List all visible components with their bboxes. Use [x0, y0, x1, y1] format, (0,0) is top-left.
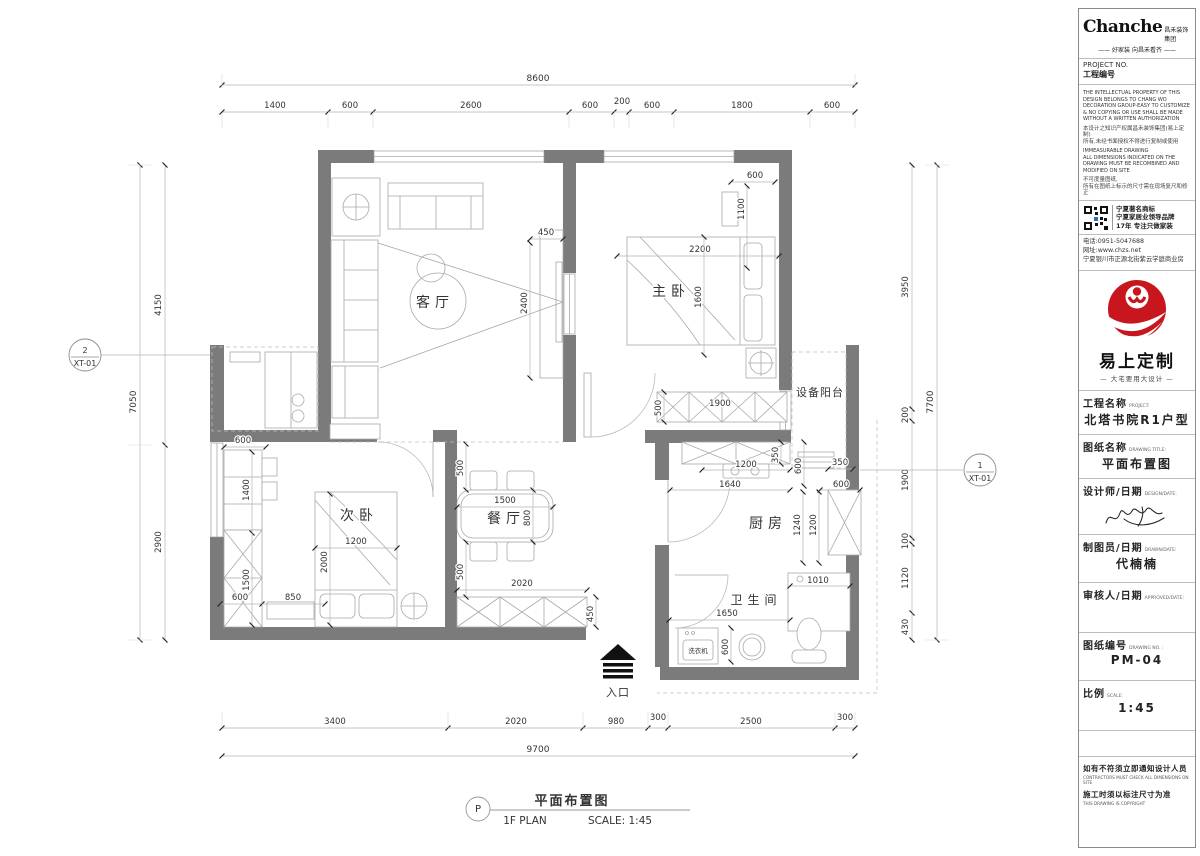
master-bedroom-furniture: [627, 192, 787, 422]
company-logo: Chanche: [1083, 17, 1162, 37]
qr-caption-line: 17年 专注只做家装: [1116, 222, 1175, 231]
dim-label: 2020: [511, 579, 533, 589]
dim-label: 2500: [740, 717, 762, 727]
qr-section: 宁夏著名商标 宁夏家居业领导品牌 17年 专注只做家装: [1079, 201, 1195, 235]
brand-mark-section: 易上定制 — 大宅要用大设计 —: [1079, 271, 1195, 391]
field-label-cn: 制图员/日期: [1083, 539, 1143, 554]
dining-room-furniture: [457, 471, 587, 627]
marker-code: XT-01: [969, 474, 992, 483]
field-label-cn: 工程名称: [1083, 395, 1127, 410]
dim-label: 1400: [264, 101, 286, 111]
project-no-section: PROJECT NO. 工程编号: [1079, 59, 1195, 85]
section-marker-left: 2 XT-01: [69, 339, 210, 371]
plan-caption: P 平面布置图 1F PLAN SCALE: 1:45: [466, 793, 690, 827]
dim-label: 1900: [709, 399, 731, 409]
marker-number: 1: [977, 461, 982, 470]
field-label-cn: 设计师/日期: [1083, 483, 1143, 498]
brand-logo-icon: [1105, 277, 1169, 341]
legal-notice: THE INTELLECTUAL PROPERTY OF THIS DESIGN…: [1079, 85, 1195, 201]
website: 网址:www.chzs.net: [1083, 246, 1191, 255]
field-label-en: DRAWING TITLE:: [1129, 448, 1166, 453]
dim-label: 1650: [716, 609, 738, 619]
project-name-value: 北塔书院R1户型: [1083, 411, 1191, 428]
project-no-label-en: PROJECT NO.: [1083, 61, 1191, 69]
dim-label: 7050: [129, 390, 139, 413]
field-designer: 设计师/日期 DESIGN/DATE:: [1079, 479, 1195, 535]
dim-label: 600: [833, 480, 849, 490]
note-cn: 如有不符须立即通知设计人员: [1083, 763, 1191, 774]
dim-label: 2200: [689, 245, 711, 255]
field-label-en: SCALE:: [1107, 694, 1123, 699]
drawing-title-value: 平面布置图: [1083, 455, 1191, 472]
drafter-value: 代楠楠: [1083, 555, 1191, 572]
dim-label: 600: [342, 101, 358, 111]
dim-label: 1500: [242, 569, 252, 591]
field-label-cn: 图纸编号: [1083, 637, 1127, 652]
dim-label: 1120: [901, 567, 911, 589]
field-label-en: DESIGN/DATE:: [1145, 492, 1177, 497]
marker-number: 2: [82, 346, 87, 355]
dim-label: 7700: [926, 390, 936, 413]
dim-chain-right: 3950 200 1900 100 1120 430 7700: [901, 165, 949, 640]
field-approver: 审核人/日期 APPROVED/DATE:: [1079, 583, 1195, 633]
dim-label: 600: [794, 458, 804, 474]
dim-label: 3950: [901, 276, 911, 298]
dim-label: 1800: [731, 101, 753, 111]
dim-label: 1200: [809, 514, 819, 536]
field-label-cn: 比例: [1083, 685, 1105, 700]
field-label-en: DRAWING NO. :: [1129, 646, 1163, 651]
field-label-cn: 审核人/日期: [1083, 587, 1143, 602]
brand-logo-tagline: — 大宅要用大设计 —: [1083, 373, 1191, 383]
dim-label: 200: [901, 407, 911, 423]
designer-signature: [1098, 499, 1176, 531]
company-name-cn: 昌禾装饰集团: [1164, 25, 1191, 43]
dim-label: 450: [586, 606, 596, 622]
dim-label: 600: [747, 171, 763, 181]
note-en: CONTRACTORS MUST CHECK ALL DIMENSIONS ON…: [1083, 775, 1191, 785]
brand-logo-name: 易上定制: [1083, 347, 1191, 372]
caption-bubble: P: [475, 804, 481, 815]
dim-chain-left: 4150 2900 7050: [128, 165, 165, 640]
spacer-cell: [1079, 731, 1195, 757]
qr-caption-line: 宁夏家居业领导品牌: [1116, 213, 1175, 222]
dim-label: 600: [824, 101, 840, 111]
dim-label: 850: [285, 593, 301, 603]
dim-label: 2000: [320, 551, 330, 573]
legal-text-en: IMMEASURABLE DRAWING ALL DIMENSIONS INDI…: [1083, 148, 1191, 174]
drawing-no-value: PM-04: [1083, 653, 1191, 667]
dim-label: 1900: [901, 469, 911, 491]
scale-value: 1:45: [1083, 701, 1191, 715]
dim-label: 600: [582, 101, 598, 111]
qr-code: [1083, 205, 1109, 231]
dim-label: 500: [654, 400, 664, 416]
dim-label: 8600: [527, 74, 550, 84]
field-label-en: PROJECT:: [1129, 404, 1149, 409]
dim-label: 3400: [324, 717, 346, 727]
dim-chain-bottom: 3400 2020 980 300 2500 300 9700: [222, 712, 855, 756]
field-drafter: 制图员/日期 DRAWN/DATE: 代楠楠: [1079, 535, 1195, 583]
field-scale: 比例 SCALE: 1:45: [1079, 681, 1195, 731]
dim-label: 600: [232, 593, 248, 603]
dim-label: 1600: [694, 286, 704, 308]
legal-text-cn: 不可度量图纸, 所有在图纸上标示的尺寸需在现场复尺和修正: [1083, 177, 1191, 197]
dim-label: 200: [614, 97, 630, 107]
dim-label: 1500: [494, 496, 516, 506]
dim-label: 9700: [527, 745, 550, 755]
dim-label: 500: [456, 564, 466, 580]
dim-label: 600: [644, 101, 660, 111]
room-label-master: 主卧: [652, 284, 690, 300]
section-marker-right: 1 XT-01: [860, 454, 996, 486]
field-label-cn: 图纸名称: [1083, 439, 1127, 454]
project-no-label-cn: 工程编号: [1083, 69, 1191, 80]
dim-label: 1100: [737, 198, 747, 220]
note-cn: 施工时须以标注尺寸为准: [1083, 789, 1191, 800]
phone-number: 电话:0951-5047688: [1083, 237, 1191, 246]
entrance-label: 入口: [606, 686, 630, 699]
address: 宁夏银川市正源北街紫云学庭商业房: [1083, 255, 1191, 264]
dim-label: 430: [901, 619, 911, 635]
dim-label: 600: [721, 639, 731, 655]
dim-label: 350: [832, 458, 848, 468]
field-drawing-no: 图纸编号 DRAWING NO. : PM-04: [1079, 633, 1195, 681]
dim-label: 800: [523, 510, 533, 526]
dim-label: 2400: [520, 292, 530, 314]
company-slogan: —— 好家装 向昌禾看齐 ——: [1083, 45, 1191, 54]
note-en: THIS DRAWING IS COPYRIGHT: [1083, 801, 1191, 806]
dim-chain-top: 8600 1400 600 2600 600 200 600 1800 600: [222, 74, 855, 128]
dim-label: 980: [608, 717, 624, 727]
drawing-sheet: 入口 客厅 主卧 次卧 餐厅 厨房 卫生间 设备阳台 洗衣机 8600 1400…: [0, 0, 1200, 856]
caption-scale: SCALE: 1:45: [588, 815, 652, 827]
field-drawing-title: 图纸名称 DRAWING TITLE: 平面布置图: [1079, 435, 1195, 479]
legal-text-en: THE INTELLECTUAL PROPERTY OF THIS DESIGN…: [1083, 90, 1191, 123]
dim-label: 2020: [505, 717, 527, 727]
second-bedroom-furniture: [224, 442, 433, 627]
dim-label: 100: [901, 533, 911, 549]
field-label-en: DRAWN/DATE:: [1145, 548, 1177, 553]
room-label-kitchen: 厨房: [749, 516, 787, 532]
dim-label: 300: [650, 713, 666, 723]
caption-plan-name: 1F PLAN: [503, 815, 547, 827]
company-logo-section: Chanche 昌禾装饰集团 —— 好家装 向昌禾看齐 ——: [1079, 9, 1195, 59]
entrance-arrow: 入口: [600, 644, 636, 699]
dim-label: 1240: [793, 514, 803, 536]
dim-label: 2600: [460, 101, 482, 111]
legal-text-cn: 本设计之知识产权属昌禾装饰集团(易上定制) 所有,未经书面授权不得进行复制或使用: [1083, 126, 1191, 146]
marker-code: XT-01: [74, 359, 97, 368]
title-block: Chanche 昌禾装饰集团 —— 好家装 向昌禾看齐 —— PROJECT N…: [1078, 8, 1196, 848]
dim-label: 350: [771, 447, 781, 463]
contact-section: 电话:0951-5047688 网址:www.chzs.net 宁夏银川市正源北…: [1079, 235, 1195, 271]
qr-caption-line: 宁夏著名商标: [1116, 205, 1175, 214]
caption-title: 平面布置图: [534, 793, 609, 809]
room-label-bath: 卫生间: [730, 593, 781, 607]
dim-label: 600: [235, 436, 251, 446]
floor-plan-drawing: 入口 客厅 主卧 次卧 餐厅 厨房 卫生间 设备阳台 洗衣机 8600 1400…: [0, 0, 1078, 856]
dim-label: 1640: [719, 480, 741, 490]
dim-label: 500: [456, 460, 466, 476]
notes-section: 如有不符须立即通知设计人员 CONTRACTORS MUST CHECK ALL…: [1079, 757, 1195, 841]
room-label-second: 次卧: [340, 508, 378, 524]
dim-label: 450: [538, 228, 554, 238]
field-project-name: 工程名称 PROJECT: 北塔书院R1户型: [1079, 391, 1195, 435]
dim-label: 1010: [807, 576, 829, 586]
room-label-washer: 洗衣机: [688, 646, 708, 655]
dim-label: 2900: [154, 531, 164, 553]
field-label-en: APPROVED/DATE:: [1145, 596, 1184, 601]
room-label-living: 客厅: [416, 294, 454, 311]
dim-label: 300: [837, 713, 853, 723]
dim-label: 1200: [735, 460, 757, 470]
room-label-dining: 餐厅: [487, 511, 525, 527]
dim-label: 1200: [345, 537, 367, 547]
room-label-balcony: 设备阳台: [796, 385, 844, 399]
dim-label: 4150: [154, 294, 164, 316]
dim-label: 1400: [242, 479, 252, 501]
